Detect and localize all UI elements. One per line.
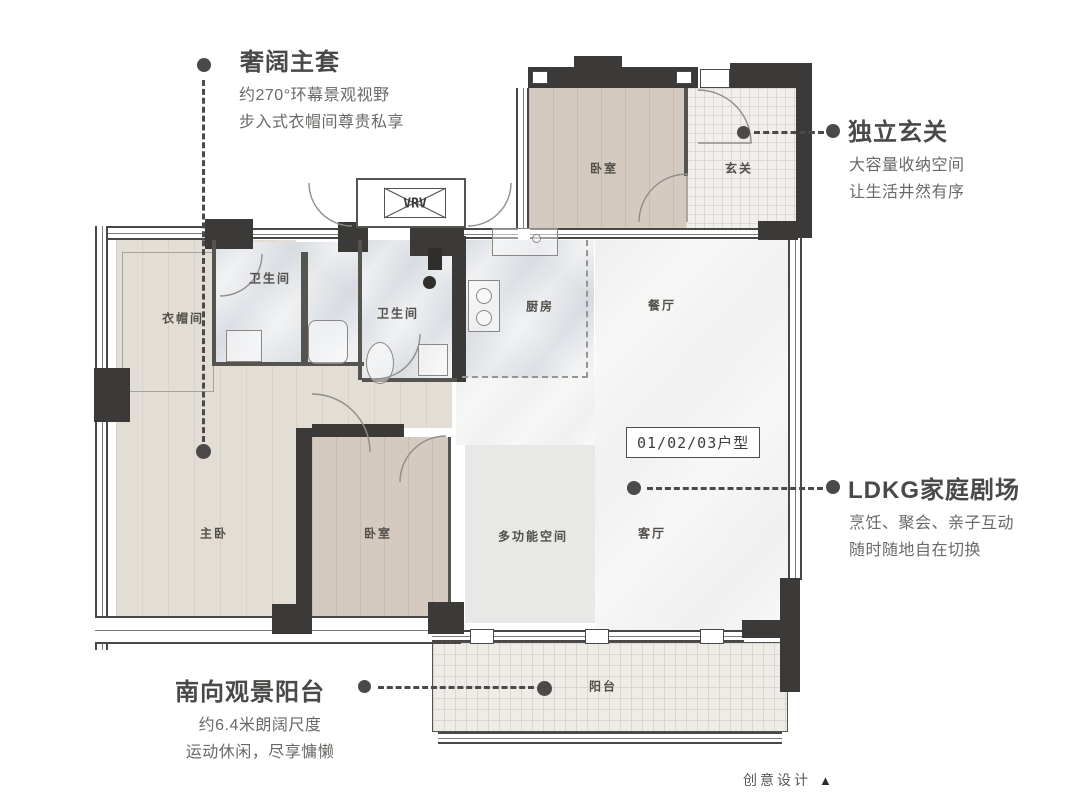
credit-text: 创意设计 — [743, 772, 811, 788]
balcony-ledge — [438, 732, 782, 744]
wall-segment — [312, 424, 404, 437]
annotation-entry-title: 独立玄关 — [848, 112, 948, 147]
wall-band — [530, 228, 760, 239]
callout-dot — [358, 680, 371, 693]
room-label-kitchen: 厨房 — [526, 298, 554, 315]
annotation-line: 约270°环幕景观视野 — [239, 82, 404, 109]
window-band — [252, 228, 340, 239]
annotation-line: 随时随地自在切换 — [849, 537, 1014, 564]
tub-fixture — [308, 320, 348, 364]
wall-segment — [296, 428, 312, 610]
toilet-fixture — [366, 342, 394, 384]
wall-pier — [94, 368, 130, 422]
annotation-line: 烹饪、聚会、亲子互动 — [849, 510, 1014, 537]
window-mullion — [700, 629, 724, 644]
floor-entry-hall — [686, 88, 796, 228]
wall-segment — [796, 88, 812, 238]
wall-thin — [212, 240, 216, 366]
window — [676, 71, 692, 84]
floorplan-page: VRV 卧室 玄关 衣帽间 卫生间 卫生间 厨房 餐厅 主卧 卧室 多功能空间 … — [0, 0, 1080, 810]
window — [532, 71, 548, 84]
callout-dot — [197, 58, 211, 72]
annotation-entry-desc: 大容量收纳空间 让生活井然有序 — [849, 152, 965, 206]
sink-fixture — [418, 344, 448, 376]
wall-pier — [428, 602, 464, 634]
callout-dot — [826, 124, 840, 138]
wall-pier — [272, 604, 312, 634]
window-band — [95, 226, 207, 240]
window-band-right — [788, 238, 802, 580]
room-label-bathroom-second: 卫生间 — [377, 305, 419, 322]
floor-hall-marble — [456, 378, 595, 445]
room-label-bedroom-second: 卧室 — [364, 525, 392, 542]
room-label-living: 客厅 — [638, 525, 666, 542]
wall-thin — [358, 240, 362, 380]
burner-icon — [476, 288, 492, 304]
annotation-line: 大容量收纳空间 — [849, 152, 965, 179]
room-label-bedroom-top: 卧室 — [590, 160, 618, 177]
callout-dash-line — [754, 131, 824, 134]
annotation-master-suite-title: 奢阔主套 — [240, 42, 340, 77]
unit-type-label: 01/02/03户型 — [626, 427, 760, 458]
wall-segment — [528, 67, 698, 88]
window — [700, 69, 730, 88]
toilet-fixture — [428, 248, 442, 270]
annotation-balcony-desc: 约6.4米朗阔尺度 运动休闲，尽享慵懒 — [140, 712, 380, 766]
window-mullion — [585, 629, 609, 644]
wall-segment — [730, 63, 812, 88]
callout-dash-line — [378, 686, 534, 689]
annotation-line: 让生活井然有序 — [849, 179, 965, 206]
annotation-master-suite-desc: 约270°环幕景观视野 步入式衣帽间尊贵私享 — [239, 82, 404, 136]
annotation-balcony-title: 南向观景阳台 — [175, 672, 325, 707]
room-label-entry-hall: 玄关 — [725, 160, 753, 177]
credit-line: 创意设计▲ — [743, 770, 832, 790]
kitchen-counter — [492, 228, 558, 256]
burner-icon — [476, 310, 492, 326]
callout-dot — [196, 444, 211, 459]
wall-thin — [301, 252, 308, 364]
window-band — [516, 88, 529, 228]
wall-thin — [684, 88, 688, 176]
window-band-left — [95, 226, 108, 650]
room-label-multifunction: 多功能空间 — [498, 528, 568, 545]
annotation-ldkg-desc: 烹饪、聚会、亲子互动 随时随地自在切换 — [849, 510, 1014, 564]
callout-dash-line — [202, 80, 205, 442]
wall-pier — [758, 221, 798, 240]
wall-thin — [448, 437, 451, 602]
vrv-label: VRV — [403, 197, 426, 212]
triangle-icon: ▲ — [819, 773, 832, 788]
room-label-dining: 餐厅 — [648, 297, 676, 314]
room-label-cloakroom: 衣帽间 — [162, 310, 204, 327]
sink-fixture — [226, 330, 262, 362]
faucet-icon — [532, 234, 541, 243]
callout-dot — [537, 681, 552, 696]
callout-dot — [737, 126, 750, 139]
annotation-line: 约6.4米朗阔尺度 — [140, 712, 380, 739]
drain-fixture — [423, 276, 436, 289]
floor-bedroom-top — [529, 88, 686, 228]
callout-dot — [627, 481, 641, 495]
room-label-bathroom-master: 卫生间 — [249, 270, 291, 287]
callout-dot — [826, 480, 840, 494]
wall-segment — [780, 578, 800, 692]
room-label-balcony: 阳台 — [589, 678, 617, 695]
annotation-line: 运动休闲，尽享慵懒 — [140, 739, 380, 766]
room-label-master-bedroom: 主卧 — [200, 525, 228, 542]
annotation-ldkg-title: LDKG家庭剧场 — [848, 470, 1020, 505]
window-mullion — [470, 629, 494, 644]
callout-dash-line — [647, 487, 823, 490]
annotation-line: 步入式衣帽间尊贵私享 — [239, 109, 404, 136]
